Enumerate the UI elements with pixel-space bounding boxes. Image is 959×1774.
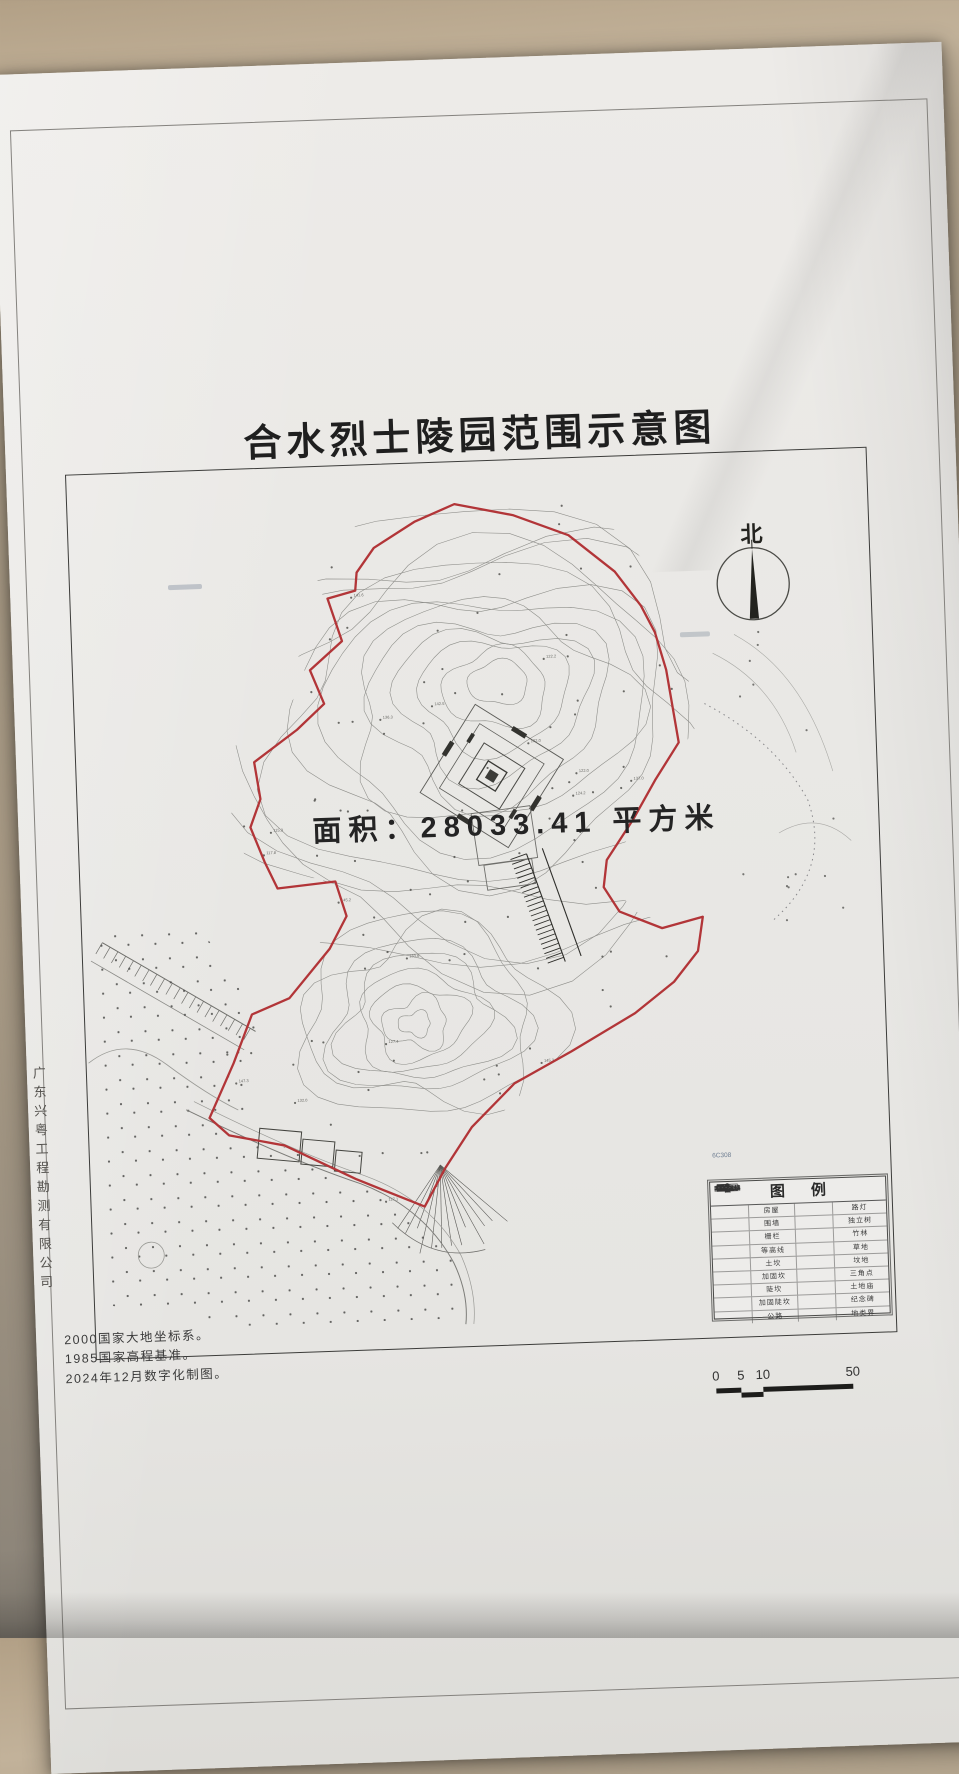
north-label: 北 (740, 521, 763, 547)
legend-label-left-1: 围墙 (749, 1217, 795, 1231)
legend-label-left-7: 加固陡坎 (752, 1296, 798, 1310)
svg-text:137.0: 137.0 (634, 775, 645, 780)
svg-text:153.6: 153.6 (409, 953, 420, 958)
legend-symbol-left-3-icon: 100 (712, 1245, 750, 1259)
scale-tick-0: 0 (712, 1368, 720, 1383)
legend-label-right-6: 土地庙 (836, 1280, 889, 1294)
svg-text:135.2: 135.2 (589, 1088, 600, 1093)
scale-bar: 0 5 10 50 (702, 1361, 923, 1405)
orchard-area (92, 918, 464, 1331)
scale-segment (741, 1392, 763, 1398)
svg-text:116.1: 116.1 (242, 580, 253, 585)
scale-tick-50: 50 (845, 1364, 860, 1379)
legend-symbol-left-0-icon (711, 1205, 749, 1219)
legend-symbol-right-8-icon (799, 1308, 837, 1322)
legend-label-left-6: 陡坎 (752, 1283, 798, 1297)
legend-label-left-5: 加固坎 (751, 1270, 797, 1284)
svg-text:128.3: 128.3 (670, 570, 681, 575)
legend-symbol-right-4-icon (797, 1255, 835, 1269)
svg-text:140.1: 140.1 (255, 667, 266, 672)
svg-text:117.8: 117.8 (266, 850, 277, 855)
contour-right-2 (734, 631, 833, 774)
svg-text:148.5: 148.5 (653, 1175, 664, 1180)
path-dotted-right (704, 700, 817, 924)
map-frame: 136.3142.5133.3140.1135.2132.0128.3121.0… (65, 447, 897, 1360)
legend-label-right-2: 竹林 (834, 1227, 887, 1241)
svg-text:127.4: 127.4 (388, 1039, 399, 1044)
svg-text:136.4: 136.4 (609, 1068, 620, 1073)
legend-label-right-5: 三角点 (835, 1266, 888, 1280)
svg-text:122.2: 122.2 (546, 653, 557, 658)
svg-text:136.3: 136.3 (383, 714, 394, 719)
svg-text:124.1: 124.1 (531, 1113, 542, 1118)
tiny-label-smudge-left (168, 584, 202, 590)
legend-label-left-3: 等高线 (750, 1243, 796, 1257)
svg-text:153.2: 153.2 (216, 523, 227, 528)
legend-label-right-0: 路灯 (833, 1200, 886, 1214)
north-arrow-icon: 北 (715, 521, 790, 621)
paper-sheet: 合水烈士陵园范围示意图 136.3142.5133.3140.1135.2132… (0, 42, 959, 1774)
legend-symbol-right-2-icon (796, 1229, 834, 1243)
datum-notes: 2000国家大地坐标系。 1985国家高程基准。 2024年12月数字化制图。 (64, 1326, 229, 1390)
legend-symbol-right-5-icon (797, 1268, 835, 1282)
photo-of-map-document: { "photo": { "desk_color": "#b3a189", "p… (0, 0, 959, 1638)
legend-label-right-8: 地类界 (837, 1306, 890, 1320)
legend-label-left-0: 房屋 (749, 1204, 795, 1218)
svg-text:141.6: 141.6 (353, 592, 364, 597)
svg-text:132.0: 132.0 (297, 1097, 308, 1102)
legend-symbol-left-4-icon (713, 1258, 751, 1272)
svg-text:139.1: 139.1 (635, 857, 646, 862)
svg-text:142.5: 142.5 (434, 701, 445, 706)
legend-label-left-8: 公路 (753, 1309, 799, 1323)
legend-symbol-left-6-icon (714, 1284, 752, 1298)
legend-box: 图例 房屋路灯围墙独立树栅栏竹林100等高线草地土坎坟地加固坎三角点陡坎土地庙加… (709, 1175, 891, 1319)
legend-symbol-left-7-icon (714, 1298, 752, 1312)
svg-text:124.2: 124.2 (576, 790, 587, 795)
legend-rows: 房屋路灯围墙独立树栅栏竹林100等高线草地土坎坟地加固坎三角点陡坎土地庙加固陡坎… (711, 1200, 890, 1324)
svg-text:133.3: 133.3 (638, 499, 649, 504)
scale-segment (763, 1384, 853, 1392)
legend-label-right-1: 独立树 (833, 1214, 886, 1228)
scale-segment (716, 1388, 741, 1394)
scale-tick-5: 5 (737, 1368, 745, 1383)
legend-symbol-left-8-icon (715, 1311, 753, 1325)
svg-text:121.0: 121.0 (654, 1115, 665, 1120)
legend-symbol-right-6-icon (798, 1281, 836, 1295)
legend-symbol-left-2-icon (712, 1232, 750, 1246)
legend-symbol-right-1-icon (795, 1216, 833, 1230)
legend-label-right-3: 草地 (834, 1240, 887, 1254)
svg-text:147.2: 147.2 (728, 839, 739, 844)
legend-label-left-4: 土坎 (751, 1256, 797, 1270)
svg-text:151.9: 151.9 (231, 918, 242, 923)
legend-symbol-left-1-icon (711, 1218, 749, 1232)
legend-label-left-2: 栅栏 (750, 1230, 796, 1244)
station-label: 6C308 (712, 1152, 732, 1160)
svg-text:122.0: 122.0 (579, 768, 590, 773)
contour-right-1 (713, 650, 797, 755)
legend-symbol-left-5-icon (713, 1271, 751, 1285)
legend-symbol-right-0-icon (795, 1202, 833, 1216)
svg-text:115.3: 115.3 (273, 827, 284, 832)
legend-symbol-right-7-icon (798, 1295, 836, 1309)
elevation-points: 136.3142.5133.3140.1135.2132.0128.3121.0… (191, 497, 750, 1209)
legend-label-right-7: 纪念碑 (836, 1293, 889, 1307)
legend-symbol-right-3-icon (796, 1242, 834, 1256)
scale-tick-10: 10 (755, 1367, 770, 1382)
legend-label-right-4: 坟地 (835, 1253, 888, 1267)
tiny-label-smudge-right (680, 631, 710, 637)
